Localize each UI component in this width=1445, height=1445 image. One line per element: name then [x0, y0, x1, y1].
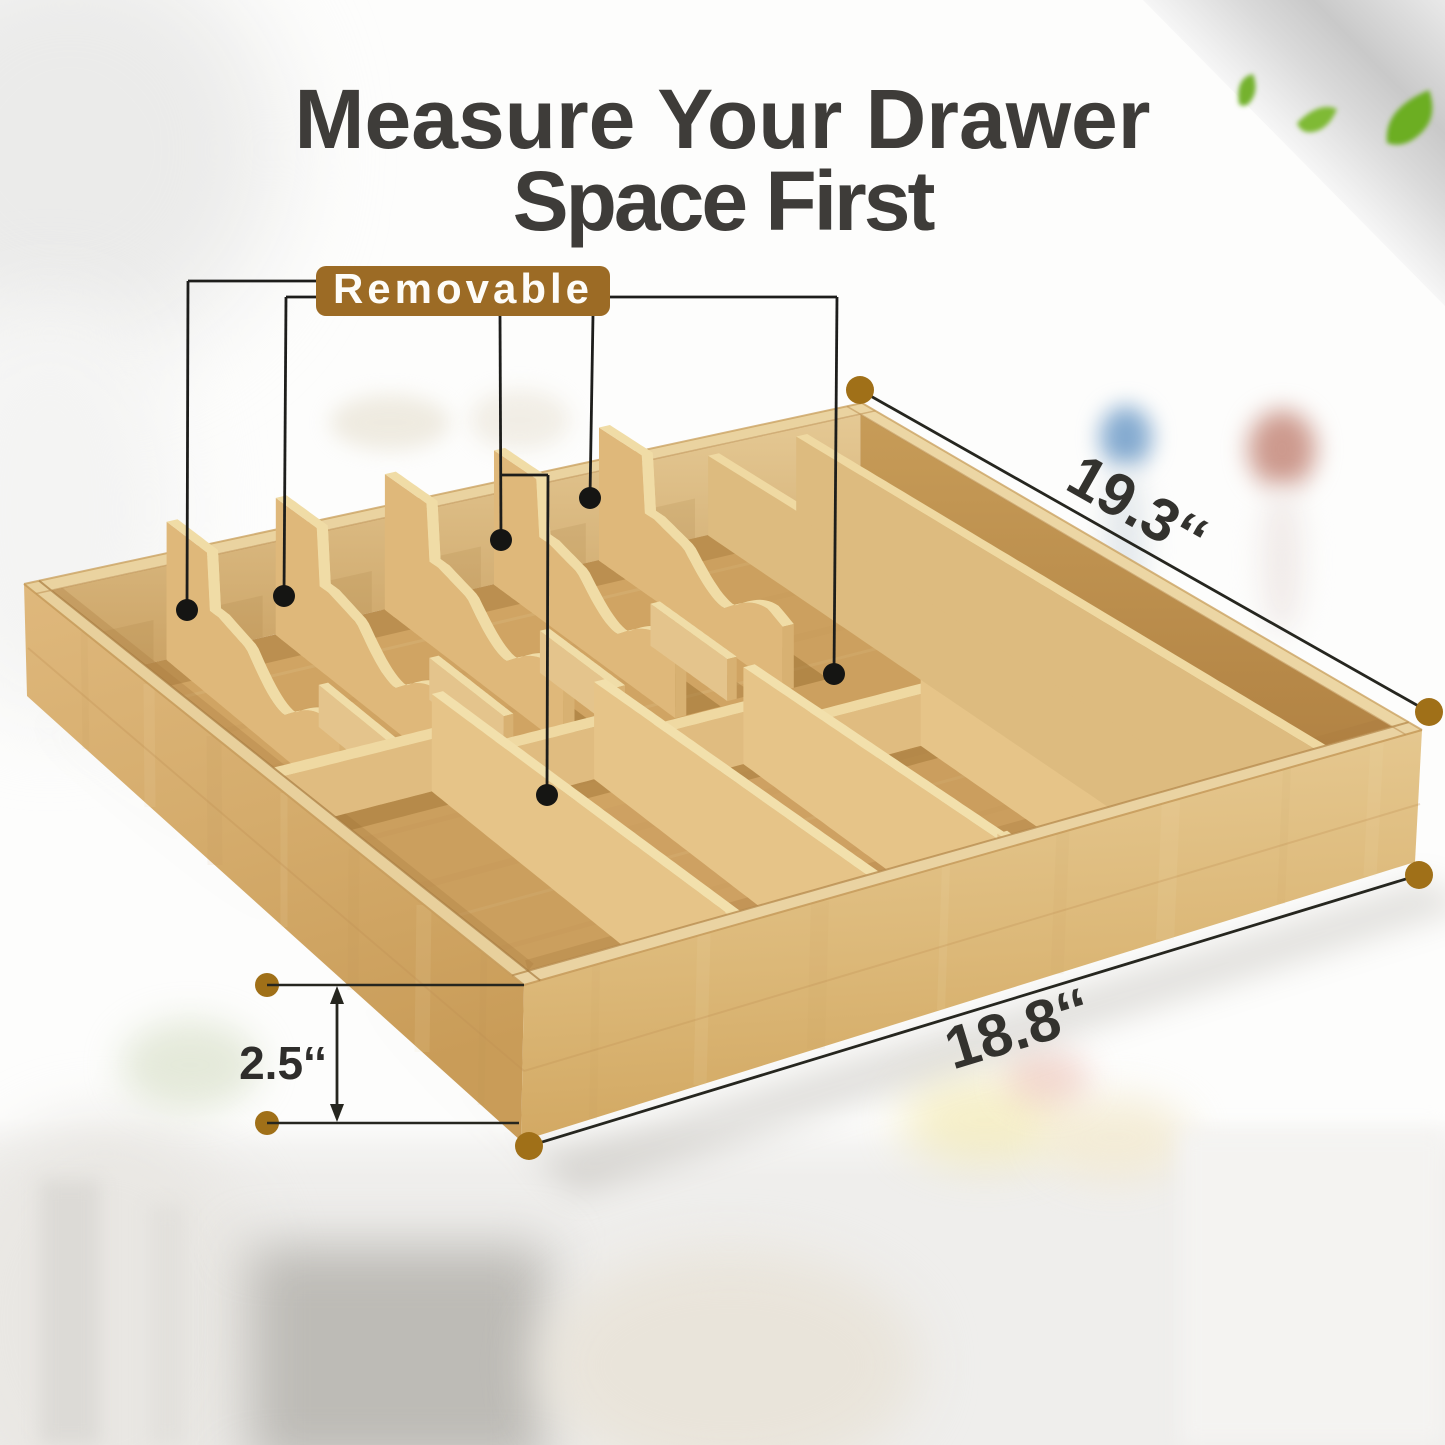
svg-text:2.5‘‘: 2.5‘‘	[239, 1037, 327, 1089]
svg-text:Removable: Removable	[333, 265, 593, 312]
